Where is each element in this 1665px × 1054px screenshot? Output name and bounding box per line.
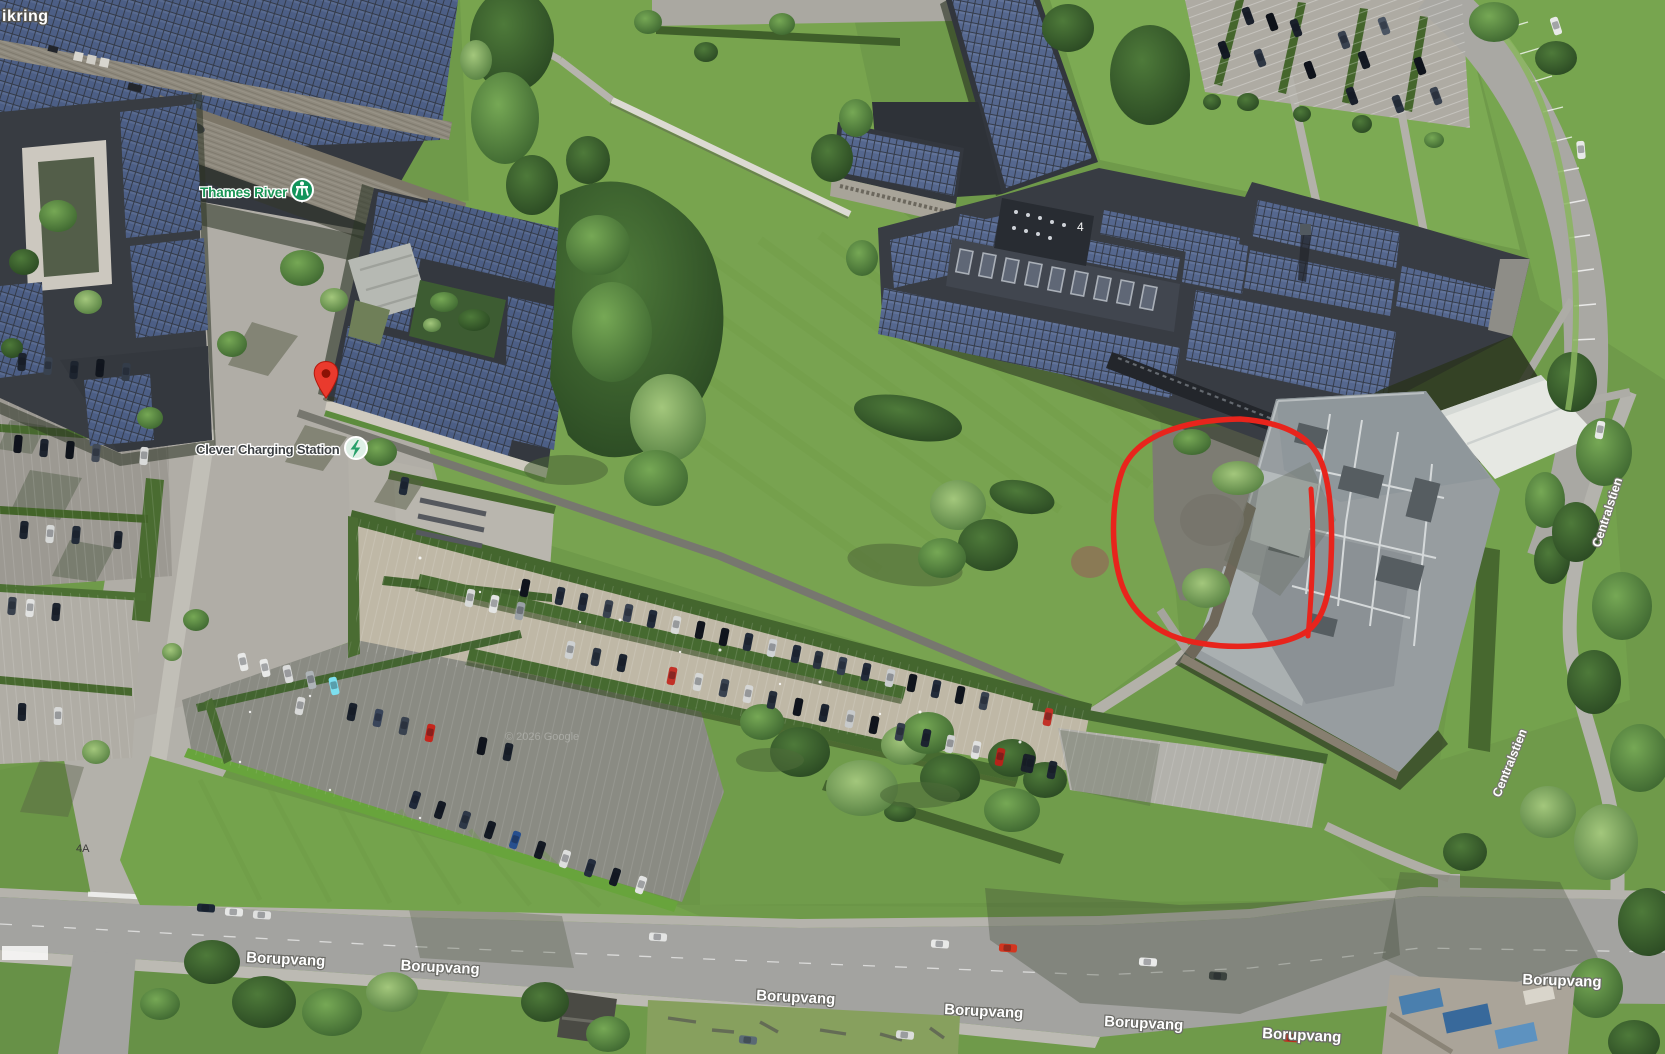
svg-text:4A: 4A	[76, 843, 90, 855]
svg-text:Thames River: Thames River	[200, 185, 288, 200]
svg-text:ikring: ikring	[2, 8, 49, 25]
svg-text:© 2026 Google: © 2026 Google	[505, 731, 579, 743]
svg-text:Clever Charging Station: Clever Charging Station	[196, 442, 340, 457]
svg-text:4: 4	[1077, 220, 1084, 234]
svg-text:Borupvang: Borupvang	[1522, 971, 1602, 991]
